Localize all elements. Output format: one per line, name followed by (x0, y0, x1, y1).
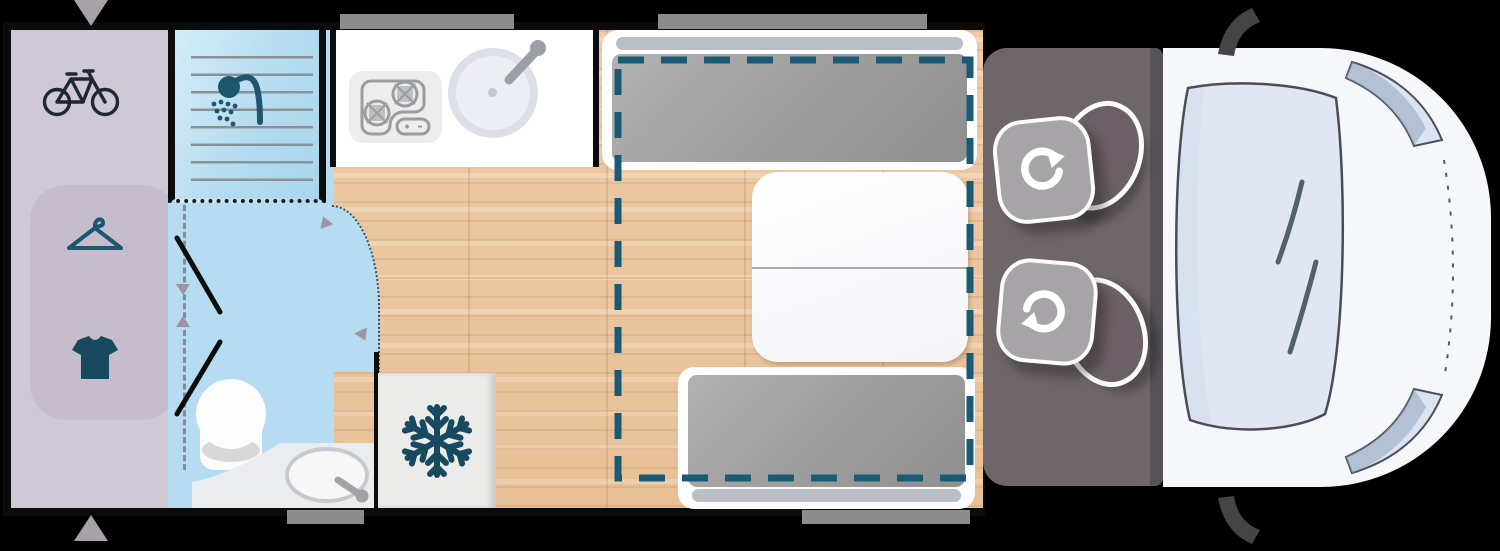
rotate-icon (1018, 286, 1070, 338)
floorplan (0, 0, 1500, 551)
kitchen-right-wall (593, 30, 599, 167)
headlight-bottom (1338, 385, 1456, 489)
kitchen-sink-drain (488, 88, 497, 97)
window-dinette-bottom (802, 510, 970, 524)
window-kitchen (340, 14, 514, 29)
clothes-hanger-icon (64, 210, 126, 254)
drop-down-bed-outline (610, 52, 978, 486)
washbasin-counter (188, 435, 378, 510)
shower-icon (202, 66, 274, 150)
door-arrow-up (74, 515, 108, 541)
hood-line (1435, 150, 1475, 390)
bench-headrest (616, 37, 963, 50)
headlight-top (1338, 46, 1456, 150)
mirror-top-icon (1208, 2, 1268, 56)
tshirt-icon (68, 335, 122, 381)
rotate-icon (1016, 142, 1068, 194)
door-arrow-down (74, 0, 108, 26)
windshield (1156, 64, 1366, 454)
stove-burners-icon (349, 71, 442, 143)
faucet-icon (503, 42, 545, 84)
mirror-bottom-icon (1208, 496, 1268, 550)
snowflake-icon (399, 403, 475, 479)
bench-headrest (692, 489, 961, 502)
bicycle-icon (42, 62, 120, 118)
window-bathroom (287, 510, 364, 524)
window-dinette-top (658, 14, 927, 29)
